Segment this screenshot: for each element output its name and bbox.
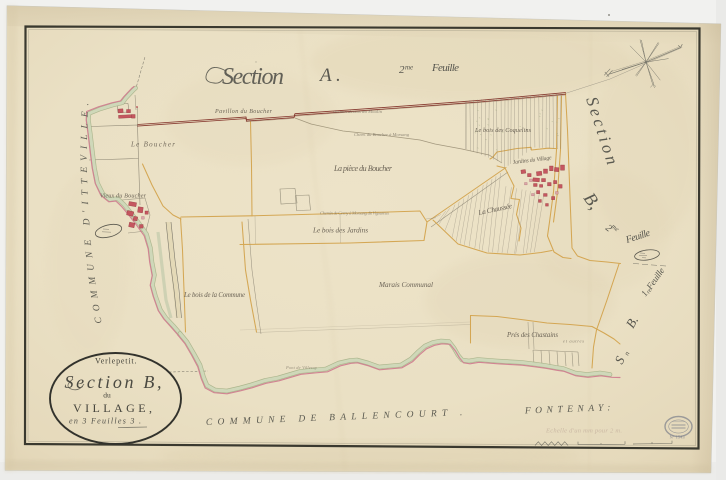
svg-text:en 3 Feuilles 3 .: en 3 Feuilles 3 . [69,417,141,426]
svg-text:Marais Communal: Marais Communal [378,281,433,289]
svg-text:A .: A . [318,65,341,86]
svg-text:Section: Section [222,64,284,90]
svg-text:chemin dessus du Moulin: chemin dessus du Moulin [333,109,383,114]
svg-text:Echelle d'un mm pour 2 m.: Echelle d'un mm pour 2 m. [545,428,622,435]
svg-text:Le bois des Jardins: Le bois des Jardins [312,227,368,235]
svg-text:Prés des Chastains: Prés des Chastains [506,332,558,339]
svg-text:Feuille: Feuille [431,62,459,74]
svg-text:et autres: et autres [563,339,584,344]
svg-text:VILLAGE,: VILLAGE, [73,401,155,415]
svg-text:N° 1543: N° 1543 [670,435,686,440]
svg-text:Pont de Villeroy: Pont de Villeroy [285,365,317,370]
svg-text:du: du [103,391,111,400]
svg-text:me: me [405,64,413,72]
svg-text:La pièce du Boucher: La pièce du Boucher [333,164,393,173]
svg-text:Vieux du Boucher: Vieux du Boucher [100,193,147,200]
svg-text:Le bois des Coquelins: Le bois des Coquelins [474,127,532,134]
svg-text:Chemin de Cerny à Morsang dit: Chemin de Cerny à Morsang dit Vigoureux [320,211,389,216]
svg-text:Le bois de la Commune: Le bois de la Commune [183,292,245,299]
svg-text:Le Boucher: Le Boucher [130,141,175,149]
svg-text:Verlepetit.: Verlepetit. [95,357,137,366]
svg-text:Chem. du Boucher à Morsang: Chem. du Boucher à Morsang [354,132,410,137]
svg-text:Pavillon du Boucher: Pavillon du Boucher [214,109,273,115]
